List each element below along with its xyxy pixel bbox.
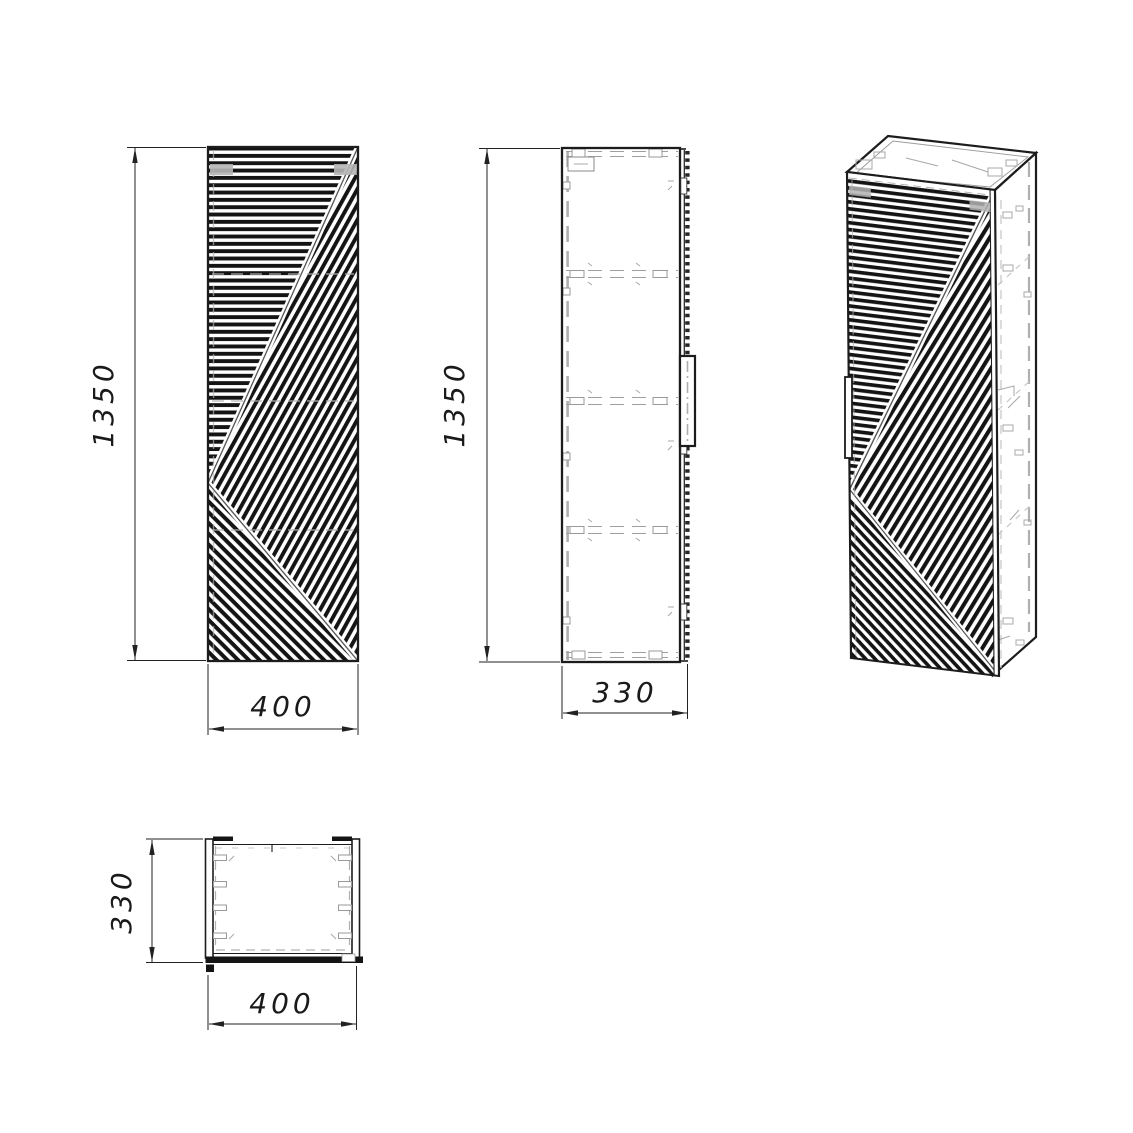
technical-drawing-canvas: 1350 400 [0,0,1133,1133]
side-height-dimension: 1350 [438,149,560,663]
top-depth-label: 330 [105,868,138,933]
isometric-view [845,136,1036,676]
top-width-dimension: 400 [208,966,357,1030]
front-width-dimension: 400 [208,664,358,735]
iso-handle [845,377,852,458]
iso-side-face [993,153,1036,675]
cabinet-drawing: 1350 400 [0,0,1133,1133]
side-hinge-top [681,178,687,194]
top-front-edge-right [332,837,352,842]
front-hinge-mark-right [334,164,357,175]
top-width-label: 400 [249,987,314,1020]
side-view [562,148,695,662]
front-height-dimension: 1350 [87,148,206,661]
iso-front-face [847,172,999,676]
side-handle [680,356,695,446]
side-depth-dimension: 330 [562,664,688,719]
top-left-wall [206,839,214,958]
top-view [206,837,364,973]
top-depth-dimension: 330 [105,839,203,963]
top-back-panel [206,957,364,964]
top-right-wall [352,839,360,958]
side-depth-label: 330 [592,676,657,709]
side-hinge-bottom [681,604,687,620]
side-height-label: 1350 [438,360,471,447]
top-door-corner-mark [206,965,214,973]
front-height-label: 1350 [87,360,120,447]
front-hinge-mark-left [210,164,233,175]
front-width-label: 400 [250,690,315,723]
top-front-edge-left [213,837,233,842]
front-view [208,147,358,661]
